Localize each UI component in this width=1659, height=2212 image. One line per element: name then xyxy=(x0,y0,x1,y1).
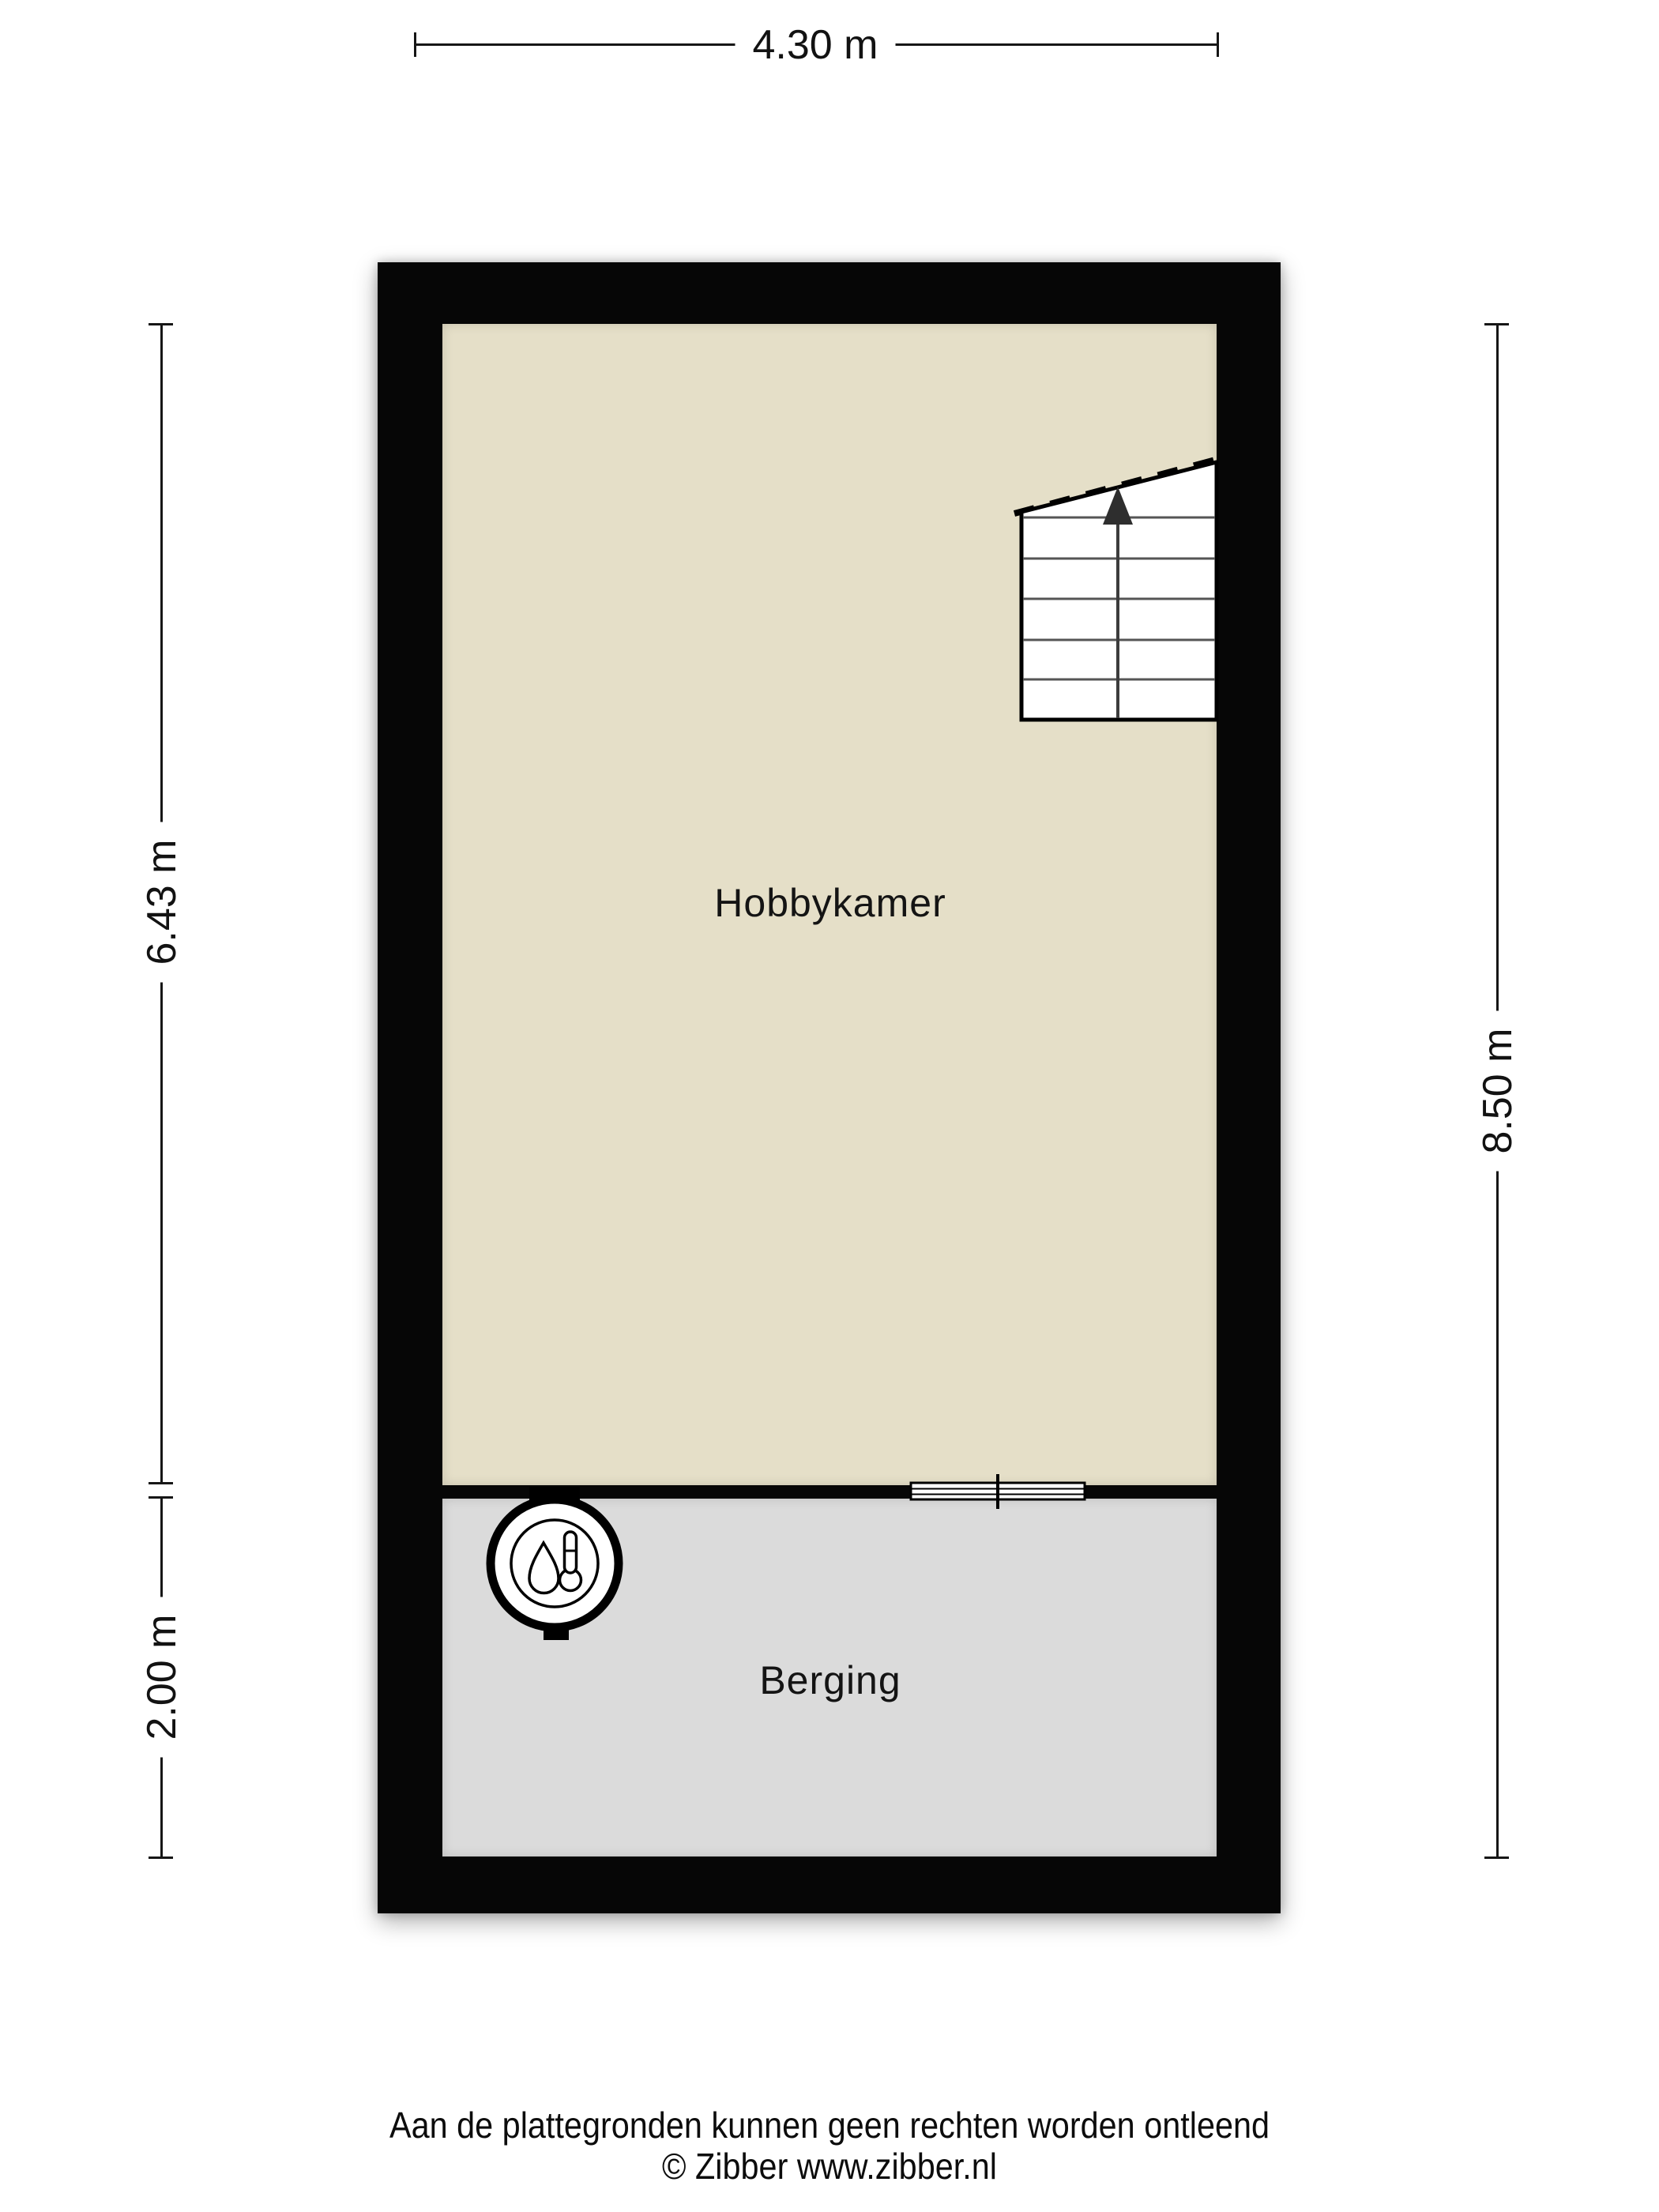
footer-copyright: © Zibber www.zibber.nl xyxy=(83,2146,1576,2187)
dimension-tick xyxy=(149,1856,173,1859)
dimension-tick xyxy=(414,32,416,57)
dimension-tick xyxy=(1484,1856,1509,1859)
heater-icon xyxy=(491,1487,619,1640)
floorplan-page: { "colors": { "background": "#ffffff", "… xyxy=(0,0,1659,2212)
room-label-berging: Berging xyxy=(759,1659,901,1702)
footer: Aan de plattegronden kunnen geen rechten… xyxy=(0,2105,1659,2187)
dimension-tick xyxy=(149,323,173,325)
dimension-tick xyxy=(1484,323,1509,325)
dimension-tick xyxy=(1217,32,1219,57)
dimension-label-right: 8.50 m xyxy=(1474,1011,1522,1172)
room-label-hobbykamer: Hobbykamer xyxy=(714,882,946,924)
dimension-tick xyxy=(149,1482,173,1484)
dimension-label-top: 4.30 m xyxy=(735,21,896,69)
footer-disclaimer: Aan de plattegronden kunnen geen rechten… xyxy=(83,2105,1576,2146)
dimension-tick xyxy=(149,1496,173,1499)
window-door-marker-icon xyxy=(911,1474,1085,1509)
dimension-label-left-lower: 2.00 m xyxy=(138,1597,186,1758)
dimension-label-left-upper: 6.43 m xyxy=(138,822,186,983)
staircase-icon xyxy=(1014,458,1221,720)
